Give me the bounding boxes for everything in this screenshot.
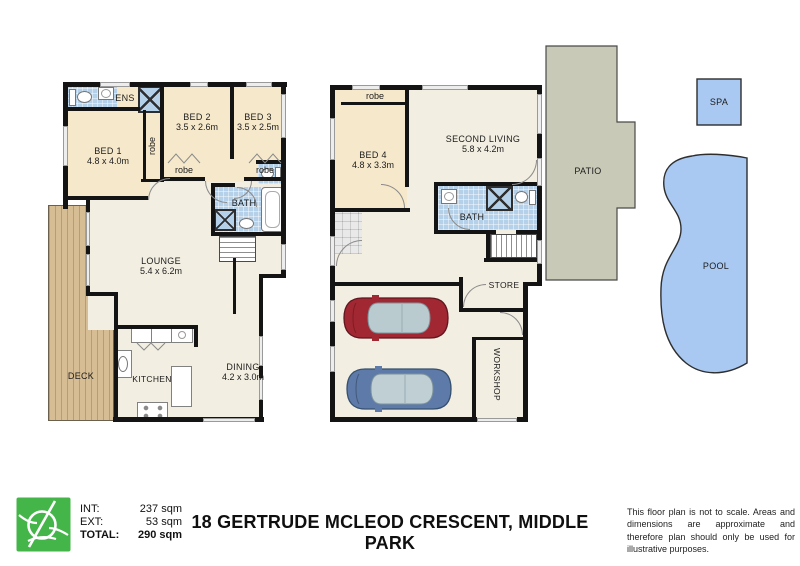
area-row-ext: EXT: 53 sqm [80, 516, 182, 529]
wall-segment [472, 340, 476, 421]
wall-segment [459, 308, 528, 312]
wall-segment [114, 292, 118, 421]
area-label: EXT: [80, 516, 103, 529]
room-label-bath1: BATH [222, 198, 266, 208]
wall-segment [434, 182, 438, 234]
sink-drainer-zigzag [136, 342, 166, 352]
wall-segment [516, 230, 542, 234]
wall-segment [233, 258, 236, 314]
room-label-robe-wall: robe [147, 126, 157, 166]
counter-divider [151, 327, 152, 343]
area-value: 237 sqm [140, 503, 182, 516]
property-address: 18 GERTRUDE MCLEOD CRESCENT, MIDDLE PARK [178, 512, 602, 554]
sink-basin [444, 192, 454, 201]
area-label-spa: SPA [703, 97, 735, 107]
room-label-kitchen: KITCHEN [128, 374, 176, 384]
kitchen-counter [171, 366, 192, 407]
wall-segment [405, 85, 409, 187]
wall-segment [116, 325, 198, 329]
room-label-store: STORE [482, 280, 526, 290]
sink-basin [101, 89, 111, 98]
window [330, 118, 335, 160]
wall-segment [330, 208, 410, 212]
window [86, 212, 90, 246]
room-label-second-living: SECOND LIVING5.8 x 4.2m [430, 134, 536, 154]
shower [486, 186, 513, 211]
car-red [342, 295, 450, 341]
room-label-deck: DECK [59, 371, 103, 381]
window [330, 300, 335, 322]
toilet [69, 89, 76, 106]
window [100, 82, 130, 87]
wall-segment [330, 282, 463, 286]
floor-plan-page: ENS robe BED 14.8 x 4.0m BED 23.5 x 2.6m… [0, 0, 800, 566]
wall-segment [517, 417, 528, 422]
room-label-bath2: BATH [450, 212, 494, 222]
room-label-robe2: robe [167, 165, 201, 175]
area-row-total: TOTAL: 290 sqm [80, 529, 182, 542]
patio-shape [546, 46, 635, 280]
toilet-bowl [515, 191, 528, 203]
room-label-workshop: WORKSHOP [490, 344, 502, 404]
area-label: TOTAL: [80, 529, 119, 542]
robe-hanger-zigzag [167, 152, 201, 164]
wall-segment [63, 107, 140, 111]
area-row-int: INT: 237 sqm [80, 503, 182, 516]
area-label: INT: [80, 503, 100, 516]
wall-segment [472, 337, 526, 340]
cooktop-fan [178, 331, 186, 339]
window [352, 85, 380, 90]
wall-segment [434, 182, 541, 186]
wall-segment [330, 417, 477, 422]
window [63, 126, 68, 166]
wall-segment [484, 258, 542, 262]
counter-divider [171, 327, 172, 343]
garage-door [477, 418, 517, 422]
window [281, 244, 286, 270]
window [330, 346, 335, 372]
wall-segment [63, 196, 148, 200]
disclaimer-text: This floor plan is not to scale. Areas a… [627, 506, 795, 556]
window [330, 236, 335, 266]
shower [138, 86, 162, 113]
room-label-robe3: robe [248, 165, 282, 175]
window [422, 85, 468, 90]
room-label-robe4: robe [358, 91, 392, 101]
car-blue [345, 366, 453, 412]
room-label-bed4: BED 44.8 x 3.3m [340, 150, 406, 170]
room-label-bed3: BED 33.5 x 2.5m [233, 112, 283, 132]
sliding-door [203, 418, 255, 422]
shower [214, 209, 236, 231]
kitchen-sink [118, 356, 128, 372]
outdoor-areas [540, 40, 760, 390]
toilet [529, 190, 536, 205]
wall-segment [160, 82, 164, 180]
wall-segment [211, 232, 286, 236]
wall-segment [341, 102, 409, 105]
area-label-patio: PATIO [564, 166, 612, 176]
sink-basin [239, 218, 254, 229]
robe-hanger-zigzag [248, 152, 282, 164]
room-label-dining: DINING4.2 x 3.0m [205, 362, 281, 382]
area-summary: INT: 237 sqm EXT: 53 sqm TOTAL: 290 sqm [80, 503, 182, 542]
wall-segment [259, 274, 286, 278]
window [190, 82, 208, 87]
room-label-bed1: BED 14.8 x 4.0m [70, 146, 146, 166]
staircase [490, 234, 537, 258]
area-value: 53 sqm [146, 516, 182, 529]
room-label-bed2: BED 23.5 x 2.6m [165, 112, 229, 132]
window [246, 82, 272, 87]
staircase [219, 236, 256, 262]
area-label-pool: POOL [697, 261, 735, 271]
area-value: 290 sqm [138, 529, 182, 542]
window [86, 254, 90, 286]
toilet-bowl [77, 91, 92, 103]
agency-logo [16, 497, 71, 552]
wall-segment [523, 282, 528, 421]
room-label-ens: ENS [112, 93, 138, 103]
room-label-lounge: LOUNGE5.4 x 6.2m [124, 256, 198, 276]
